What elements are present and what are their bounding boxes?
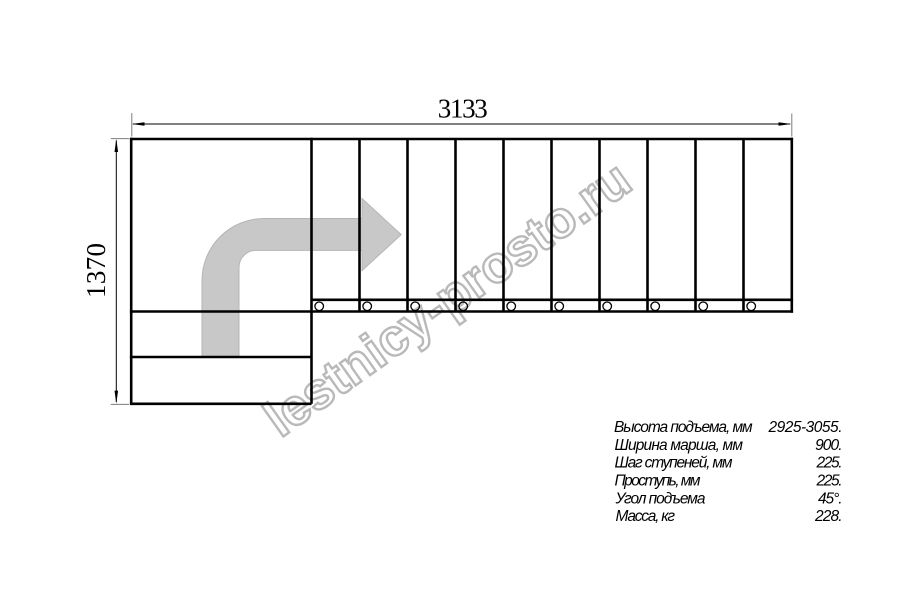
svg-text:45°.: 45°. <box>818 490 843 507</box>
svg-text:900.: 900. <box>815 437 842 454</box>
svg-text:225.: 225. <box>816 455 843 472</box>
svg-text:3133: 3133 <box>438 94 488 124</box>
svg-text:Высота подъема, мм: Высота подъема, мм <box>614 419 753 436</box>
svg-text:Угол подъема: Угол подъема <box>615 490 706 507</box>
svg-text:228.: 228. <box>814 508 843 525</box>
svg-text:2925-3055.: 2925-3055. <box>768 419 843 436</box>
svg-text:Шаг ступеней, мм: Шаг ступеней, мм <box>615 455 733 472</box>
svg-text:1370: 1370 <box>81 243 111 298</box>
svg-text:Масса, кг: Масса, кг <box>616 508 676 525</box>
svg-text:Ширина марша, мм: Ширина марша, мм <box>615 437 744 454</box>
svg-text:225.: 225. <box>816 473 843 490</box>
svg-text:Проступь, мм: Проступь, мм <box>615 473 701 490</box>
